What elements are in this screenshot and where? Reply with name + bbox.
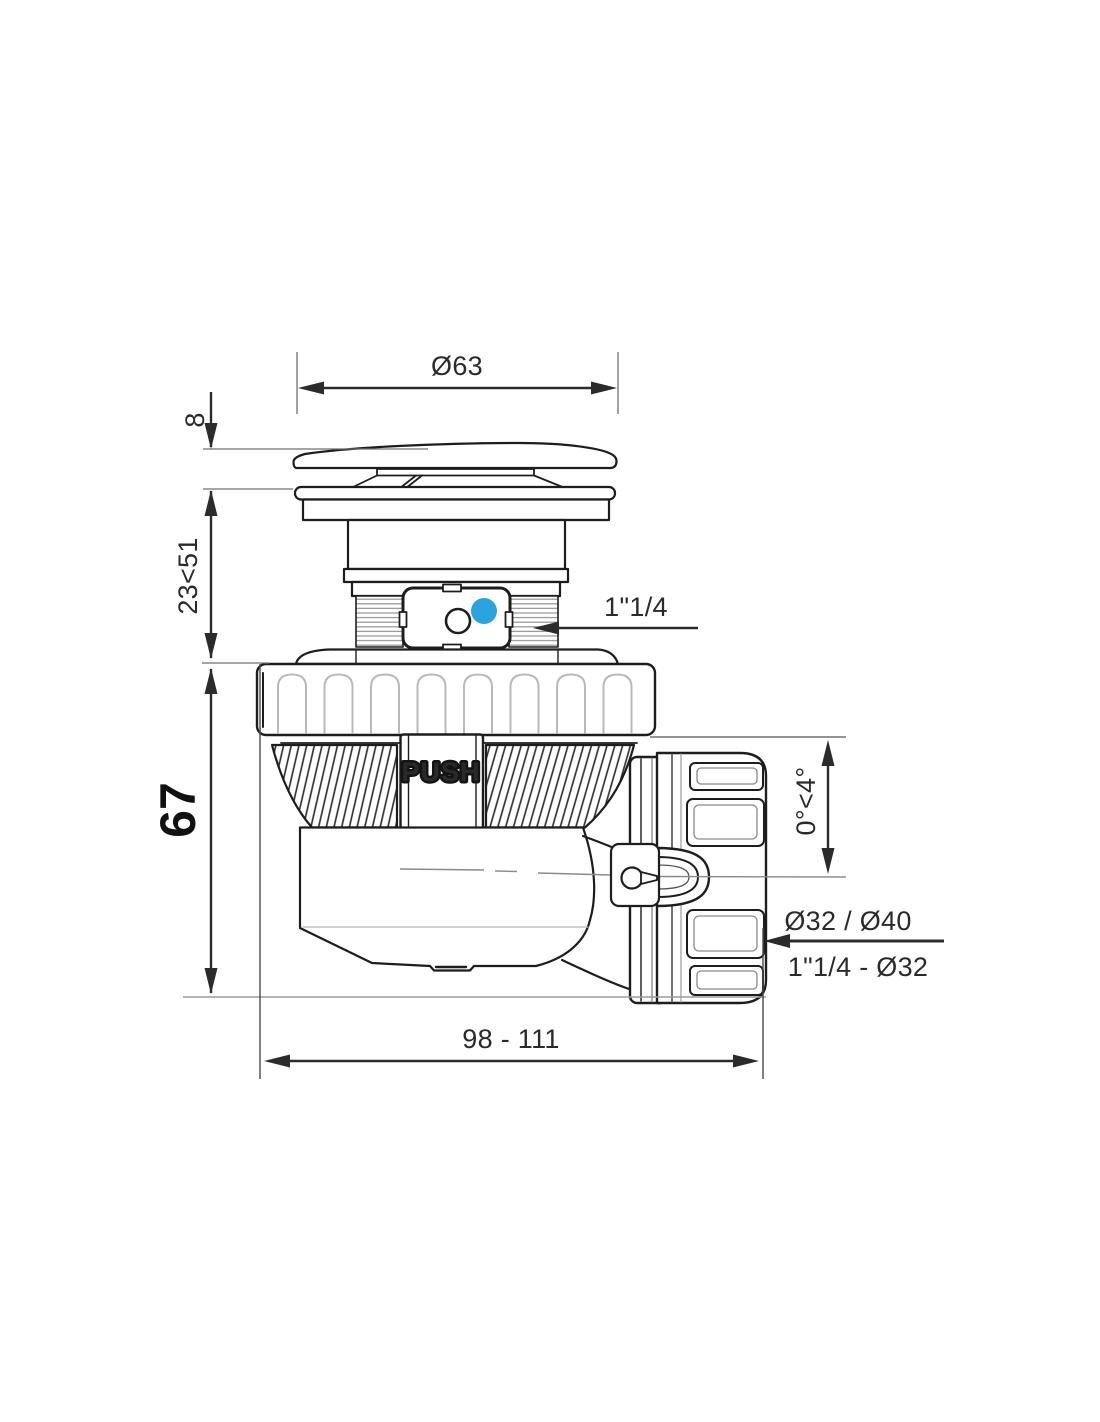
dim-cap-diameter-label: Ø63 bbox=[431, 351, 483, 381]
cap-flange-plate bbox=[295, 487, 615, 500]
diagram-canvas: Ø63 8 23<51 67 1"1/4 0°<4° Ø32 / Ø40 1"1… bbox=[0, 0, 1100, 1422]
dim-outlet-angle-label: 0°<4° bbox=[791, 767, 821, 836]
dim-adjustable-height-label: 23<51 bbox=[173, 537, 203, 614]
overflow-hole bbox=[446, 609, 470, 633]
blue-indicator-dot bbox=[471, 598, 497, 624]
fixture-drawing bbox=[257, 443, 766, 1003]
dim-body-height-label: 67 bbox=[150, 782, 206, 838]
dim-cap-height-label: 8 bbox=[180, 412, 210, 427]
ribbed-dome-left bbox=[272, 745, 397, 828]
cap-skirt bbox=[303, 500, 609, 521]
clip-fitting bbox=[400, 585, 513, 652]
dim-overall-length-label: 98 - 111 bbox=[462, 1024, 559, 1054]
collar-nut bbox=[257, 664, 655, 735]
dim-outlet-thread-label: 1"1/4 - Ø32 bbox=[788, 952, 928, 982]
inlet-thread-right bbox=[509, 596, 558, 647]
trap-cup bbox=[300, 828, 594, 971]
dim-outlet-diameters-label: Ø32 / Ø40 bbox=[784, 906, 911, 936]
cap-underside bbox=[351, 469, 565, 488]
cap-dome bbox=[294, 443, 617, 468]
drain-trap-diagram: Ø63 8 23<51 67 1"1/4 0°<4° Ø32 / Ø40 1"1… bbox=[0, 0, 1100, 1422]
body-ring bbox=[344, 569, 568, 582]
keyhole-tab bbox=[611, 844, 659, 906]
dim-inlet-thread-label: 1"1/4 bbox=[604, 592, 668, 622]
body-cylinder bbox=[348, 520, 565, 569]
ribbed-dome-right bbox=[486, 745, 634, 828]
push-tab-label: PUSH bbox=[401, 757, 480, 787]
inlet-thread-left bbox=[356, 596, 403, 647]
collar-flange bbox=[296, 650, 618, 665]
keyhole-icon bbox=[622, 868, 643, 889]
